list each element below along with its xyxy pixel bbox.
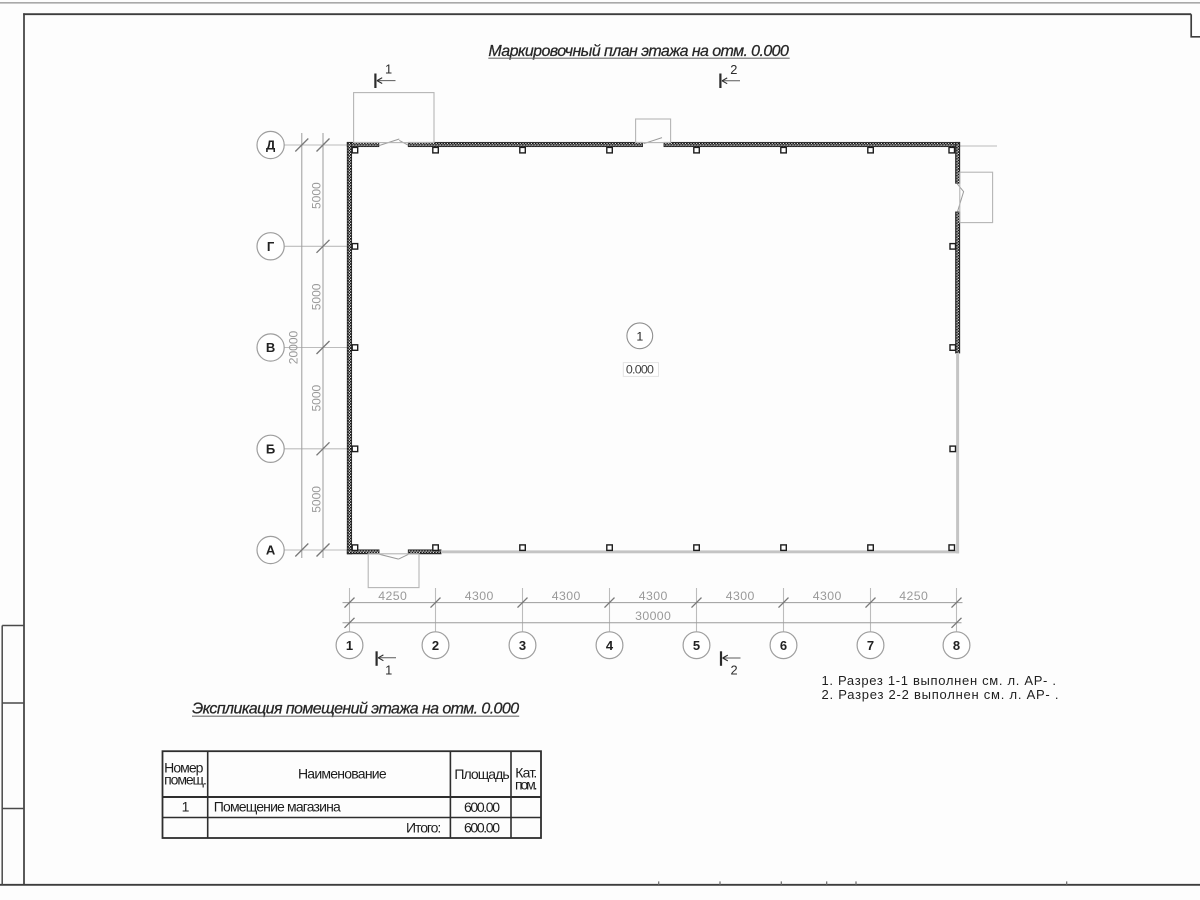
svg-text:1: 1	[346, 638, 353, 653]
svg-text:4250: 4250	[378, 589, 407, 603]
svg-text:4300: 4300	[465, 589, 494, 603]
svg-text:600.00: 600.00	[464, 819, 500, 835]
svg-text:2: 2	[432, 638, 439, 653]
svg-text:4300: 4300	[726, 589, 755, 603]
svg-text:1: 1	[385, 62, 392, 77]
svg-text:1: 1	[385, 663, 392, 678]
svg-text:А: А	[266, 543, 276, 558]
svg-text:4250: 4250	[899, 589, 928, 603]
svg-text:30000: 30000	[635, 609, 671, 623]
svg-text:4300: 4300	[813, 589, 842, 603]
svg-text:Б: Б	[266, 442, 275, 457]
svg-text:2. Разрез 2-2 выполнен см. л.: 2. Разрез 2-2 выполнен см. л. АР- .	[822, 687, 1059, 702]
svg-text:Помещение магазина: Помещение магазина	[214, 799, 341, 815]
svg-text:4: 4	[606, 638, 614, 653]
svg-text:Г: Г	[267, 239, 275, 254]
svg-text:8: 8	[953, 638, 960, 653]
svg-text:5000: 5000	[310, 283, 324, 310]
svg-text:помещ.: помещ.	[164, 772, 207, 788]
svg-text:5000: 5000	[310, 384, 324, 411]
svg-text:5000: 5000	[310, 486, 324, 513]
svg-text:2: 2	[730, 663, 737, 678]
svg-text:6: 6	[780, 638, 787, 653]
svg-text:1: 1	[636, 329, 643, 343]
svg-text:1. Разрез 1-1 выполнен см. л.: 1. Разрез 1-1 выполнен см. л. АР- .	[822, 673, 1057, 688]
svg-text:7: 7	[867, 638, 874, 653]
svg-text:3: 3	[519, 638, 526, 653]
svg-text:1: 1	[182, 799, 190, 815]
svg-text:Наименование: Наименование	[298, 766, 387, 782]
svg-text:5: 5	[693, 638, 700, 653]
svg-text:В: В	[266, 340, 275, 355]
svg-text:4300: 4300	[639, 589, 668, 603]
svg-text:Экспликация помещений этажа на: Экспликация помещений этажа на отм. 0.00…	[192, 701, 519, 718]
svg-text:600.00: 600.00	[464, 799, 500, 815]
svg-text:20000: 20000	[287, 330, 301, 364]
svg-text:5000: 5000	[310, 182, 324, 209]
svg-text:Площадь: Площадь	[454, 766, 509, 782]
svg-text:4300: 4300	[552, 589, 581, 603]
svg-text:пом.: пом.	[515, 776, 538, 792]
svg-text:2: 2	[730, 62, 737, 77]
svg-text:Итого:: Итого:	[406, 819, 441, 835]
svg-text:0.000: 0.000	[626, 363, 654, 377]
svg-text:Д: Д	[266, 138, 276, 153]
